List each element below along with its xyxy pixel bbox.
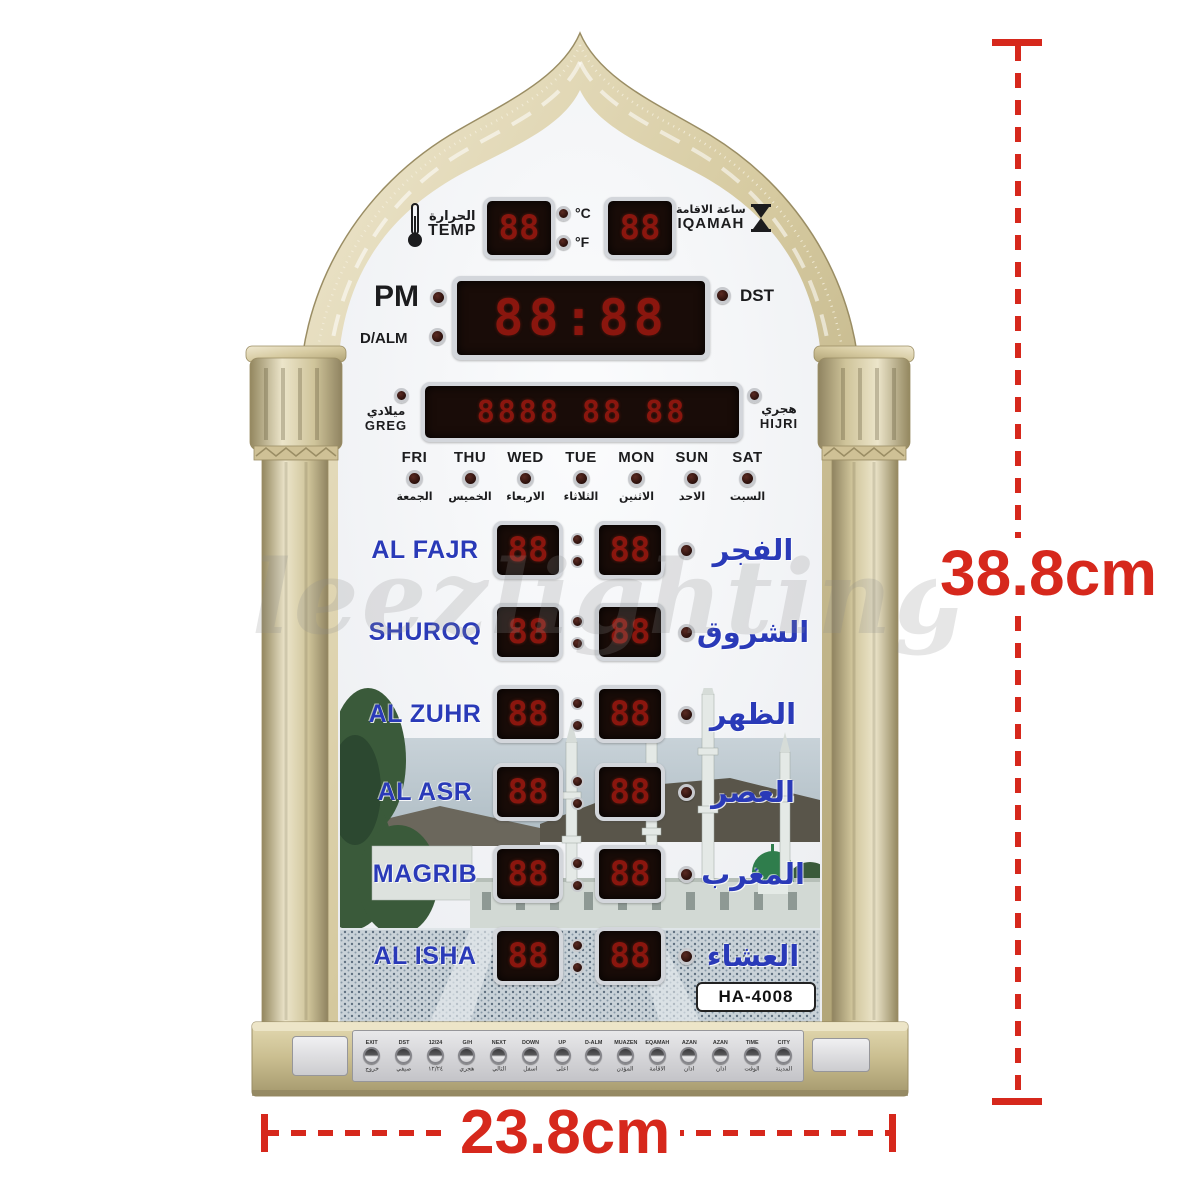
weekday-ar: السبت xyxy=(730,490,765,503)
pm-label: PM xyxy=(374,280,419,314)
button-muazen: MUAZEN المؤذن xyxy=(610,1040,640,1073)
button-label-ar: الاقامة xyxy=(649,1065,665,1072)
button-label-ar: اذان xyxy=(684,1065,694,1072)
height-dim-bottom-cap xyxy=(992,1098,1042,1105)
button-circle xyxy=(617,1047,634,1064)
button-azan-2: AZAN اذان xyxy=(706,1040,736,1073)
button-label-ar: المؤذن xyxy=(617,1065,634,1072)
model-label: HA-4008 xyxy=(696,982,816,1012)
button-circle xyxy=(427,1047,444,1064)
button-label-ar: اعلى xyxy=(556,1065,568,1072)
prayer-name-ar: الظهر xyxy=(698,685,808,743)
button-label-en: MUAZEN xyxy=(614,1040,637,1045)
weekday-tue: TUE الثلاثاء xyxy=(555,449,608,503)
button-label-en: CITY xyxy=(778,1040,790,1045)
weekday-sat: SAT السبت xyxy=(721,449,774,503)
button-circle xyxy=(649,1047,666,1064)
temp-label-group: الحرارة TEMP xyxy=(406,202,476,248)
speaker-plate-right xyxy=(812,1038,870,1072)
prayer-minute-display: 88 xyxy=(595,685,665,743)
button-city: CITY المدينة xyxy=(769,1040,799,1073)
prayer-minute-display: 88 xyxy=(595,603,665,661)
prayer-name-en: AL FAJR xyxy=(360,521,490,579)
temp-display: 88 xyxy=(483,197,555,259)
prayer-name-ar: الشروق xyxy=(698,603,808,661)
button-circle xyxy=(458,1047,475,1064)
button-label-ar: التالي xyxy=(492,1065,506,1072)
weekday-ar: الاربعاء xyxy=(506,490,544,503)
greg-label-english: GREG xyxy=(360,418,412,433)
hijri-label-english: HIJRI xyxy=(752,416,806,431)
dst-label: DST xyxy=(740,286,774,306)
button-dst: DST صيفي xyxy=(389,1040,419,1073)
weekday-en: TUE xyxy=(565,449,597,466)
greg-label-group: ميلادي GREG xyxy=(360,404,412,433)
button-label-ar: اذان xyxy=(715,1065,725,1072)
button-label-en: AZAN xyxy=(681,1040,696,1045)
greg-label-arabic: ميلادي xyxy=(360,404,412,418)
button-circle xyxy=(712,1047,729,1064)
weekday-mon: MON الاثنين xyxy=(610,449,663,503)
button-label-ar: منبه xyxy=(589,1065,599,1072)
speaker-plate-left xyxy=(292,1036,348,1076)
colon-dots xyxy=(567,845,587,903)
prayer-row-magrib: MAGRIB 88 88 المغرب xyxy=(360,845,808,903)
button-label-ar: الوقت xyxy=(745,1065,760,1072)
button-azan-1: AZAN اذان xyxy=(674,1040,704,1073)
button-label-en: AZAN xyxy=(713,1040,728,1045)
button-label-en: EQAMAH xyxy=(645,1040,669,1045)
hijri-label-group: هجري HIJRI xyxy=(752,402,806,431)
greg-indicator-dot xyxy=(394,388,409,403)
colon-dots xyxy=(567,763,587,821)
button-label-ar: خروج xyxy=(365,1065,379,1072)
prayer-name-en: SHUROQ xyxy=(360,603,490,661)
height-dim-line-lower xyxy=(1015,616,1021,1098)
main-time-display: 88:88 xyxy=(452,276,710,360)
weekday-indicator-dot xyxy=(462,470,479,487)
prayer-row-asr: AL ASR 88 88 العصر xyxy=(360,763,808,821)
button-next: NEXT التالي xyxy=(484,1040,514,1073)
weekday-ar: الثلاثاء xyxy=(564,490,599,503)
weekday-en: WED xyxy=(507,449,544,466)
temp-unit-indicators: °C °F xyxy=(556,202,591,253)
prayer-indicator-dot xyxy=(678,542,695,559)
button-circle xyxy=(490,1047,507,1064)
weekday-indicator-dot xyxy=(739,470,756,487)
weekday-indicator-dot xyxy=(684,470,701,487)
hijri-indicator-dot xyxy=(747,388,762,403)
weekday-en: SAT xyxy=(732,449,762,466)
celsius-indicator-dot xyxy=(556,206,571,221)
button-12-24: 12/24 ١٢/٢٤ xyxy=(420,1040,450,1073)
prayer-indicator-dot xyxy=(678,784,695,801)
colon-dots xyxy=(567,927,587,985)
hijri-label-arabic: هجري xyxy=(752,402,806,416)
button-circle xyxy=(775,1047,792,1064)
button-label-en: 12/24 xyxy=(428,1040,442,1045)
height-dim-top-cap xyxy=(992,39,1042,46)
colon-dots xyxy=(567,521,587,579)
prayer-indicator-dot xyxy=(678,624,695,641)
button-circle xyxy=(554,1047,571,1064)
prayer-name-ar: العصر xyxy=(698,763,808,821)
button-label-ar: المدينة xyxy=(776,1065,793,1072)
button-label-en: TIME xyxy=(746,1040,759,1045)
iqamah-label-group: ساعة الاقامة IQAMAH xyxy=(676,204,772,232)
prayer-hour-display: 88 xyxy=(493,927,563,985)
dst-indicator-dot xyxy=(714,287,731,304)
button-label-en: EXIT xyxy=(366,1040,378,1045)
weekday-ar: الاحد xyxy=(679,490,705,503)
iqamah-display: 88 xyxy=(604,197,676,259)
weekday-sun: SUN الاحد xyxy=(666,449,719,503)
button-down: DOWN اسفل xyxy=(515,1040,545,1073)
prayer-name-ar: العشاء xyxy=(698,927,808,985)
button-circle xyxy=(585,1047,602,1064)
button-up: UP اعلى xyxy=(547,1040,577,1073)
prayer-minute-display: 88 xyxy=(595,521,665,579)
width-dimension-label: 23.8cm xyxy=(450,1100,680,1166)
weekday-en: THU xyxy=(454,449,486,466)
prayer-row-fajr: AL FAJR 88 88 الفجر xyxy=(360,521,808,579)
weekday-indicator-dot xyxy=(406,470,423,487)
prayer-name-en: MAGRIB xyxy=(360,845,490,903)
button-eqamah: EQAMAH الاقامة xyxy=(642,1040,672,1073)
prayer-name-en: AL ZUHR xyxy=(360,685,490,743)
thermometer-icon xyxy=(406,202,424,248)
button-gh: G/H هجري xyxy=(452,1040,482,1073)
button-time: TIME الوقت xyxy=(737,1040,767,1073)
button-label-en: G/H xyxy=(462,1040,472,1045)
weekday-en: SUN xyxy=(675,449,708,466)
button-circle xyxy=(363,1047,380,1064)
button-label-en: UP xyxy=(558,1040,566,1045)
prayer-hour-display: 88 xyxy=(493,603,563,661)
button-label-en: DOWN xyxy=(522,1040,539,1045)
weekday-ar: الخميس xyxy=(448,490,491,503)
prayer-indicator-dot xyxy=(678,948,695,965)
weekday-ar: الاثنين xyxy=(619,490,654,503)
button-label-en: DST xyxy=(398,1040,409,1045)
prayer-row-isha: AL ISHA 88 88 العشاء xyxy=(360,927,808,985)
button-label-en: D-ALM xyxy=(585,1040,602,1045)
fahrenheit-indicator-dot xyxy=(556,235,571,250)
product-photo: الحرارة TEMP 88 °C °F 88 ساعة الاقامة IQ… xyxy=(0,0,1200,1200)
button-label-en: NEXT xyxy=(491,1040,505,1045)
weekday-ar: الجمعة xyxy=(396,490,432,503)
fahrenheit-label: °F xyxy=(575,234,589,250)
iqamah-label-english: IQAMAH xyxy=(677,216,744,232)
prayer-indicator-dot xyxy=(678,866,695,883)
height-dim-line-upper xyxy=(1015,46,1021,538)
prayer-row-zuhr: AL ZUHR 88 88 الظهر xyxy=(360,685,808,743)
weekday-en: FRI xyxy=(402,449,428,466)
prayer-minute-display: 88 xyxy=(595,845,665,903)
button-circle xyxy=(744,1047,761,1064)
colon-dots xyxy=(567,603,587,661)
button-circle xyxy=(522,1047,539,1064)
prayer-name-ar: المغرب xyxy=(698,845,808,903)
hourglass-icon xyxy=(750,204,772,232)
button-circle xyxy=(395,1047,412,1064)
button-label-ar: اسفل xyxy=(523,1065,537,1072)
weekday-indicator-dot xyxy=(517,470,534,487)
prayer-indicator-dot xyxy=(678,706,695,723)
weekday-thu: THU الخميس xyxy=(444,449,497,503)
prayer-name-ar: الفجر xyxy=(698,521,808,579)
button-exit: EXIT خروج xyxy=(357,1040,387,1073)
prayer-hour-display: 88 xyxy=(493,845,563,903)
weekday-strip: FRI الجمعة THU الخميس WED الاربعاء TUE ا… xyxy=(388,449,774,503)
prayer-hour-display: 88 xyxy=(493,763,563,821)
button-label-ar: ١٢/٢٤ xyxy=(428,1065,443,1072)
weekday-en: MON xyxy=(618,449,655,466)
prayer-hour-display: 88 xyxy=(493,685,563,743)
temp-label-arabic: الحرارة xyxy=(429,210,475,224)
prayer-minute-display: 88 xyxy=(595,763,665,821)
pm-indicator-dot xyxy=(430,289,447,306)
width-dim-right-cap xyxy=(889,1114,896,1152)
dalm-indicator-dot xyxy=(429,328,446,345)
date-display: 8888 88 88 xyxy=(421,382,743,442)
button-circle xyxy=(680,1047,697,1064)
dalm-label: D/ALM xyxy=(360,330,408,347)
prayer-name-en: AL ASR xyxy=(360,763,490,821)
prayer-hour-display: 88 xyxy=(493,521,563,579)
button-dalm: D-ALM منبه xyxy=(579,1040,609,1073)
prayer-minute-display: 88 xyxy=(595,927,665,985)
button-label-ar: صيفي xyxy=(396,1065,411,1072)
weekday-indicator-dot xyxy=(573,470,590,487)
weekday-wed: WED الاربعاء xyxy=(499,449,552,503)
control-button-panel: EXIT خروج DST صيفي 12/24 ١٢/٢٤ G/H هجري … xyxy=(352,1030,804,1082)
colon-dots xyxy=(567,685,587,743)
prayer-name-en: AL ISHA xyxy=(360,927,490,985)
height-dimension-label: 38.8cm xyxy=(936,538,1161,608)
weekday-fri: FRI الجمعة xyxy=(388,449,441,503)
celsius-label: °C xyxy=(575,205,591,221)
width-dim-left-cap xyxy=(261,1114,268,1152)
button-label-ar: هجري xyxy=(459,1065,474,1072)
prayer-row-shuroq: SHUROQ 88 88 الشروق xyxy=(360,603,808,661)
temp-label-english: TEMP xyxy=(428,223,476,240)
weekday-indicator-dot xyxy=(628,470,645,487)
